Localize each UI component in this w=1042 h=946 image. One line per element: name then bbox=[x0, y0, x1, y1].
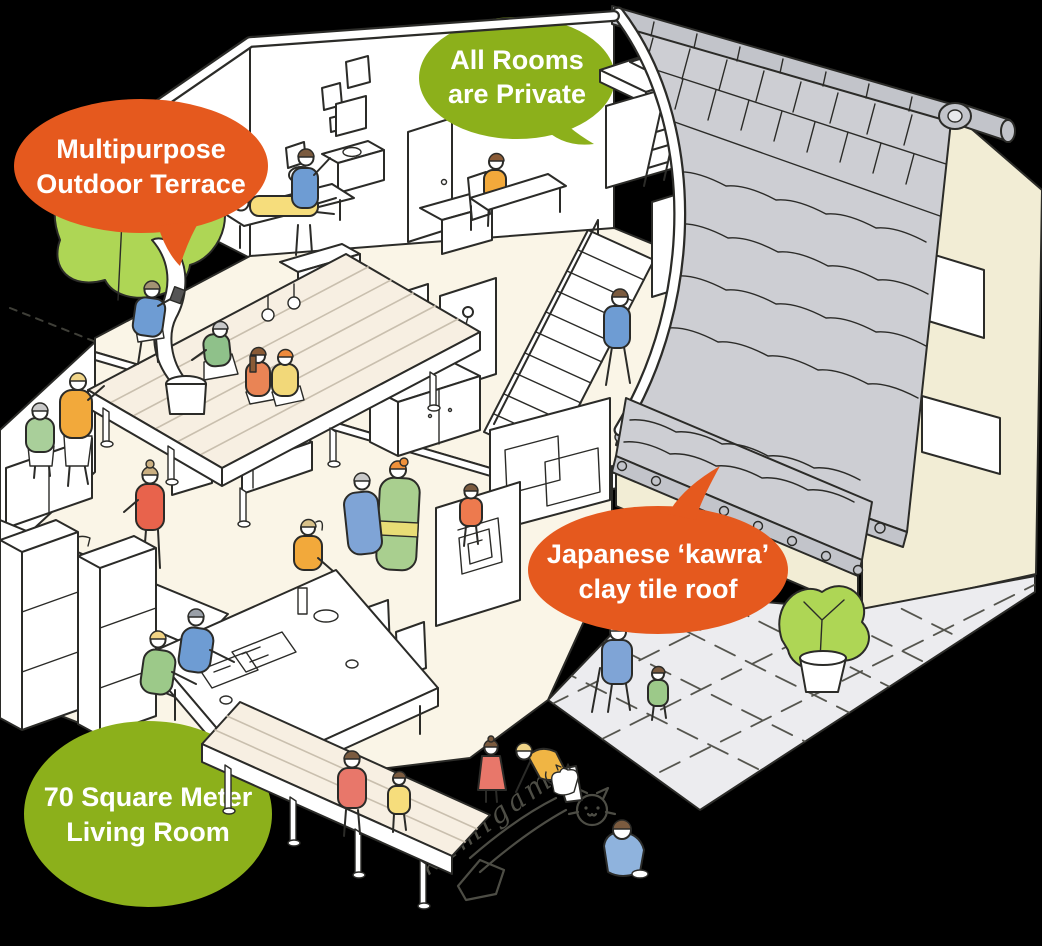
cup bbox=[346, 660, 358, 668]
callout-text: Outdoor Terrace bbox=[36, 169, 246, 199]
callout-text: Japanese ‘kawra’ bbox=[547, 539, 769, 569]
child-drawing-on-ground bbox=[604, 820, 648, 878]
tall-cupboards bbox=[0, 520, 156, 736]
cup bbox=[220, 696, 232, 704]
callout-text: 70 Square Meter bbox=[44, 782, 253, 812]
callout-text: Living Room bbox=[66, 817, 230, 847]
callout-text: Multipurpose bbox=[56, 134, 226, 164]
illustration-stage: kamigam All Ro bbox=[0, 0, 1042, 946]
bubble bbox=[528, 506, 788, 634]
bubble bbox=[14, 99, 268, 233]
callout-text: are Private bbox=[448, 79, 586, 109]
callout-text: clay tile roof bbox=[578, 574, 738, 604]
share-house-illustration: kamigam All Ro bbox=[0, 0, 1042, 946]
callout-text: All Rooms bbox=[450, 45, 584, 75]
bubble bbox=[419, 17, 615, 139]
bottle bbox=[298, 588, 307, 614]
bowl bbox=[314, 610, 338, 622]
chalk-arrow bbox=[458, 860, 504, 900]
picture-frame bbox=[346, 56, 370, 88]
